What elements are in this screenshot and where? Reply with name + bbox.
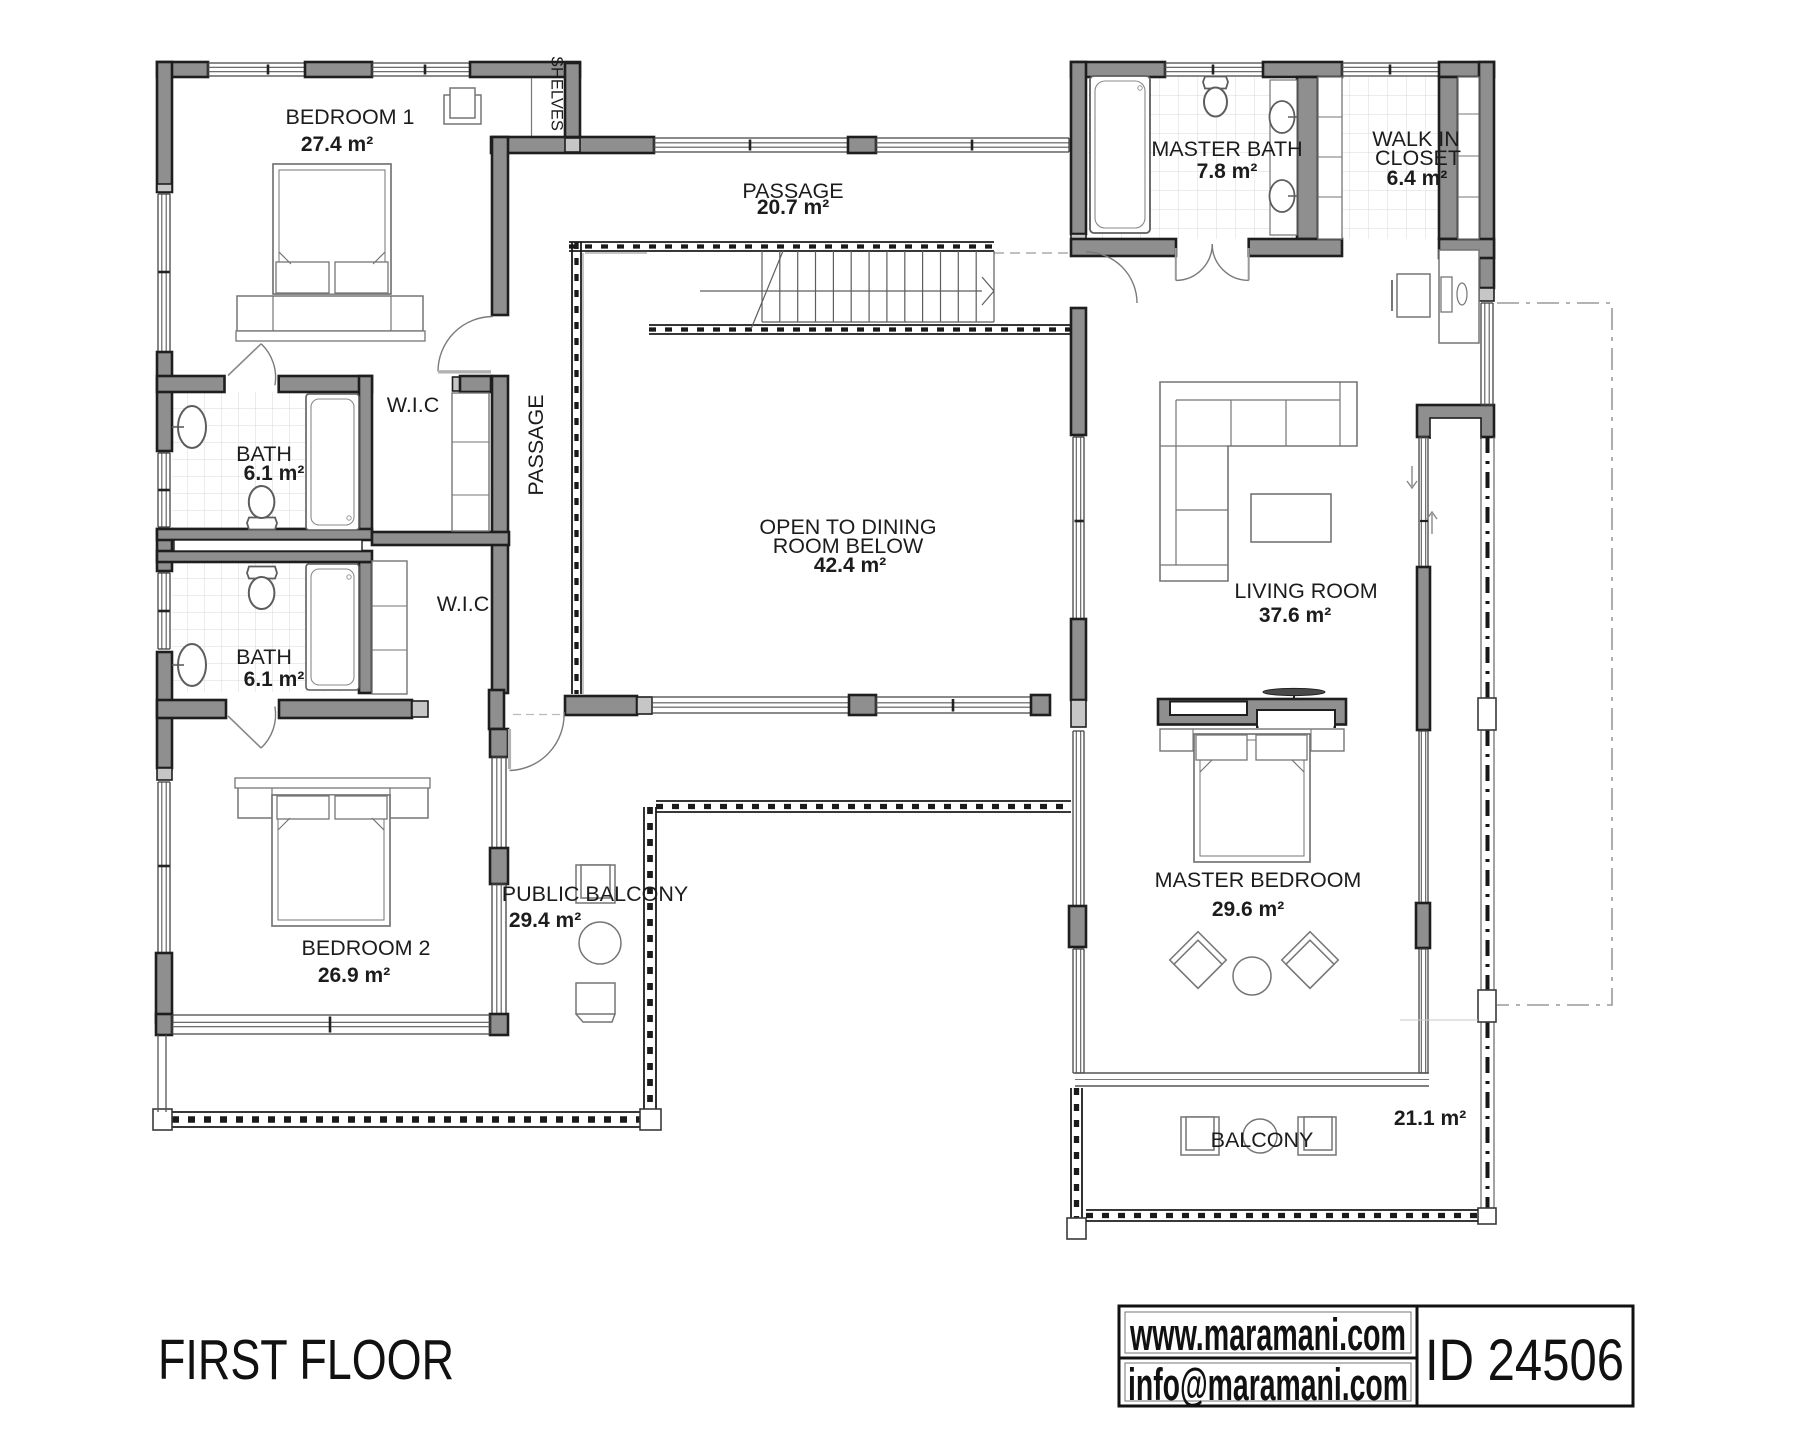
svg-text:PASSAGE: PASSAGE xyxy=(524,394,548,495)
svg-text:7.8 m²: 7.8 m² xyxy=(1197,160,1258,183)
svg-text:BATH: BATH xyxy=(236,645,292,669)
svg-text:20.7 m²: 20.7 m² xyxy=(757,196,829,219)
svg-text:MASTER BEDROOM: MASTER BEDROOM xyxy=(1155,868,1362,892)
svg-text:PUBLIC BALCONY: PUBLIC BALCONY xyxy=(502,882,688,906)
svg-text:FIRST FLOOR: FIRST FLOOR xyxy=(158,1328,454,1392)
svg-text:BEDROOM 1: BEDROOM 1 xyxy=(285,105,414,129)
svg-text:W.I.C: W.I.C xyxy=(437,592,490,616)
svg-text:29.4 m²: 29.4 m² xyxy=(509,909,581,932)
svg-text:ID 24506: ID 24506 xyxy=(1425,1328,1624,1393)
svg-text:37.6 m²: 37.6 m² xyxy=(1259,604,1331,627)
svg-text:6.1 m²: 6.1 m² xyxy=(244,668,305,691)
svg-text:29.6 m²: 29.6 m² xyxy=(1212,898,1284,921)
svg-text:6.4 m²: 6.4 m² xyxy=(1387,167,1448,190)
svg-text:26.9 m²: 26.9 m² xyxy=(318,964,390,987)
svg-text:info@maramani.com: info@maramani.com xyxy=(1128,1359,1408,1410)
svg-text:BALCONY: BALCONY xyxy=(1211,1128,1314,1152)
svg-text:42.4 m²: 42.4 m² xyxy=(814,554,886,577)
svg-text:www.maramani.com: www.maramani.com xyxy=(1129,1309,1406,1360)
svg-text:SHELVES: SHELVES xyxy=(548,56,566,131)
svg-text:21.1 m²: 21.1 m² xyxy=(1394,1107,1466,1130)
svg-text:MASTER BATH: MASTER BATH xyxy=(1151,137,1302,161)
svg-text:BEDROOM 2: BEDROOM 2 xyxy=(301,936,430,960)
svg-text:W.I.C: W.I.C xyxy=(387,393,440,417)
svg-text:LIVING ROOM: LIVING ROOM xyxy=(1234,579,1377,603)
svg-text:6.1 m²: 6.1 m² xyxy=(244,462,305,485)
svg-text:27.4 m²: 27.4 m² xyxy=(301,133,373,156)
